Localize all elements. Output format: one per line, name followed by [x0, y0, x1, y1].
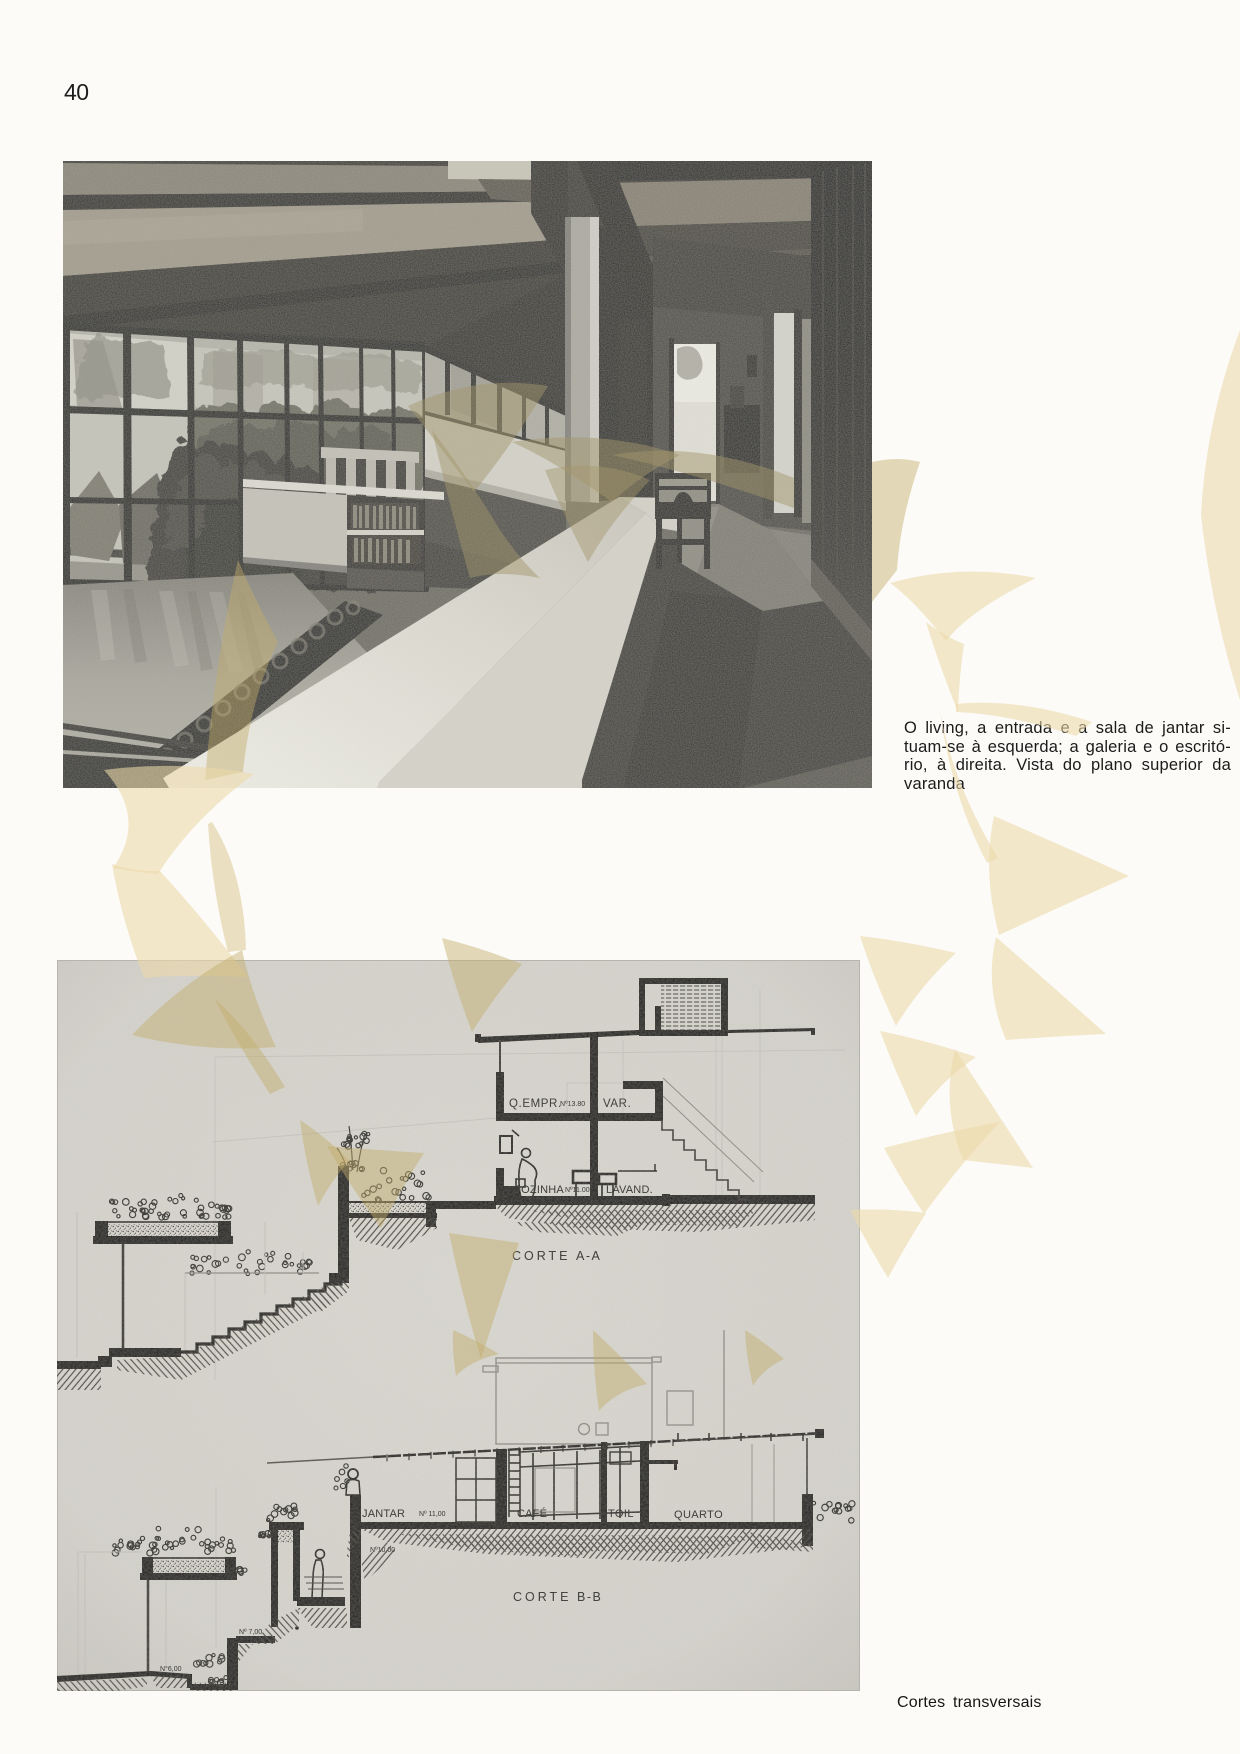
svg-text:QUARTO: QUARTO [674, 1509, 723, 1521]
svg-text:JANTAR: JANTAR [362, 1508, 405, 1520]
svg-text:CORTE: CORTE [512, 1249, 571, 1263]
svg-text:Nº 11,00: Nº 11,00 [419, 1511, 446, 1518]
svg-text:Q.EMPR.: Q.EMPR. [509, 1098, 562, 1110]
svg-text:Nº 7,00: Nº 7,00 [239, 1629, 262, 1636]
svg-text:B-B: B-B [577, 1590, 602, 1604]
svg-text:N°6,00: N°6,00 [160, 1665, 182, 1673]
svg-text:A-A: A-A [576, 1249, 601, 1263]
svg-text:LAVAND.: LAVAND. [606, 1184, 653, 1196]
svg-text:COZINHA: COZINHA [513, 1184, 564, 1196]
svg-text:CAFÉ: CAFÉ [517, 1507, 547, 1520]
svg-text:CORTE: CORTE [513, 1590, 572, 1604]
svg-text:VAR.: VAR. [603, 1098, 631, 1110]
svg-text:TOIL: TOIL [608, 1508, 634, 1520]
svg-text:Nº13.80: Nº13.80 [560, 1101, 585, 1108]
svg-text:Nº11.00: Nº11.00 [565, 1187, 590, 1194]
